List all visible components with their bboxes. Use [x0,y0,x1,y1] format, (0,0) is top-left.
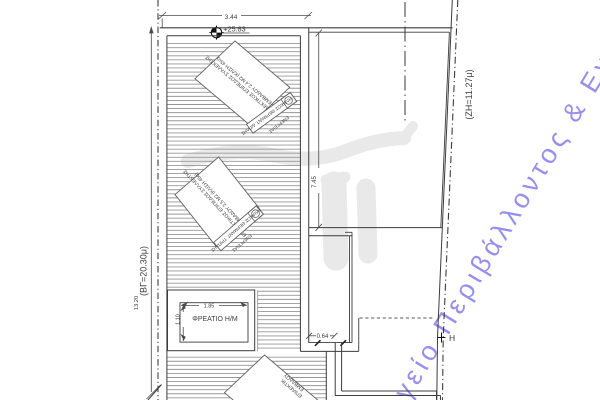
svg-text:3.44: 3.44 [225,14,238,21]
svg-text:0.64: 0.64 [317,334,329,340]
svg-text:13.20: 13.20 [134,296,140,311]
svg-text:1.85: 1.85 [204,304,215,310]
svg-text:(ΒΓ=20.30μ): (ΒΓ=20.30μ) [139,246,149,296]
svg-text:+25.83: +25.83 [223,24,245,33]
svg-text:H: H [449,333,455,343]
svg-text:1.10: 1.10 [176,314,182,325]
svg-text:ΦΡΕΑΤΙΟ Η/Μ: ΦΡΕΑΤΙΟ Η/Μ [192,316,238,323]
svg-text:(ΖΗ=11.27μ): (ΖΗ=11.27μ) [464,69,474,119]
svg-text:7.45: 7.45 [312,176,318,188]
